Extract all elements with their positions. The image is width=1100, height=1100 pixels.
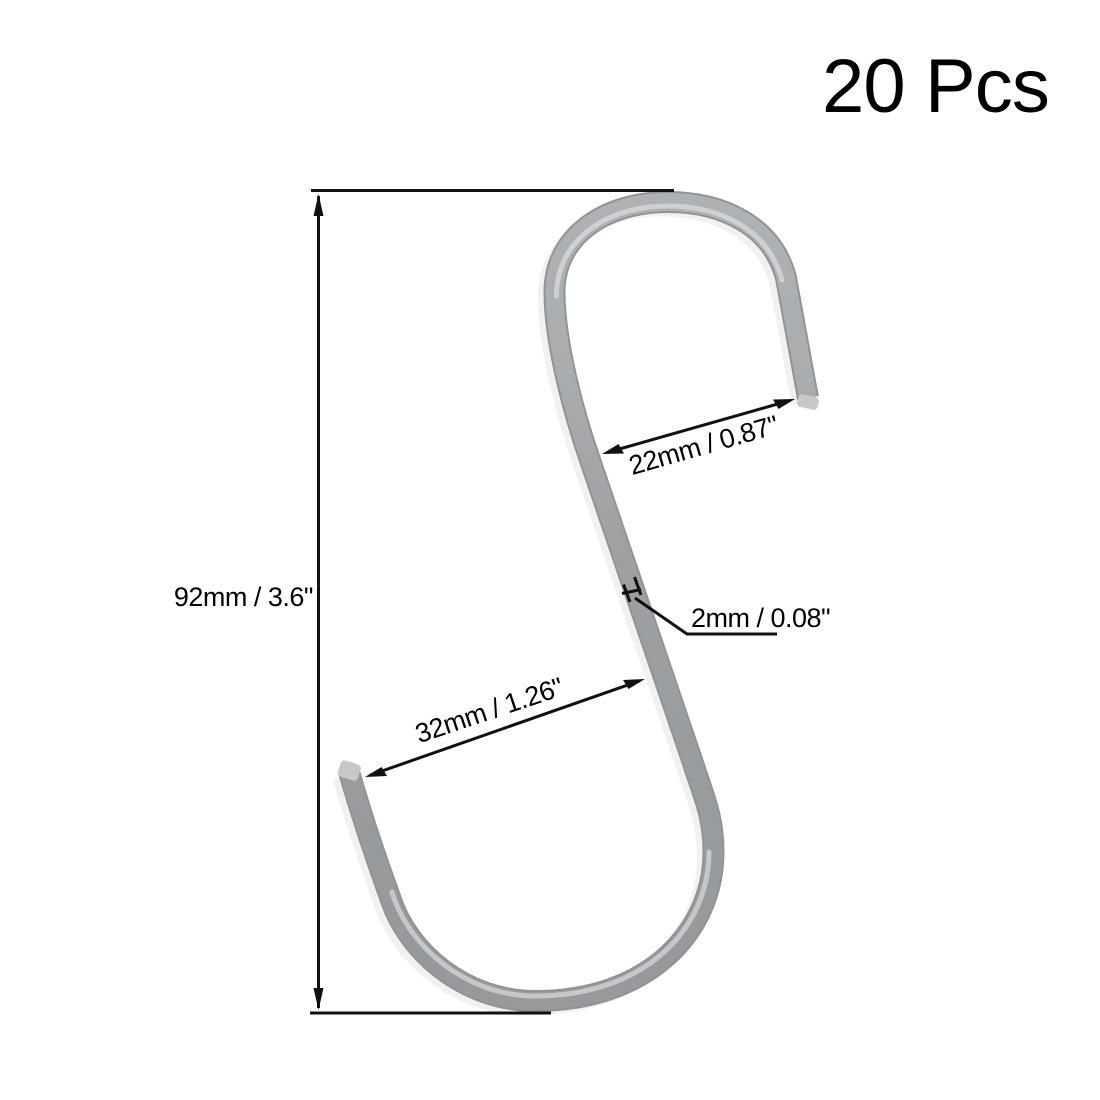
svg-text:92mm / 3.6": 92mm / 3.6" [174,582,313,612]
svg-text:20 Pcs: 20 Pcs [822,44,1049,129]
svg-text:2mm / 0.08": 2mm / 0.08" [691,603,830,633]
